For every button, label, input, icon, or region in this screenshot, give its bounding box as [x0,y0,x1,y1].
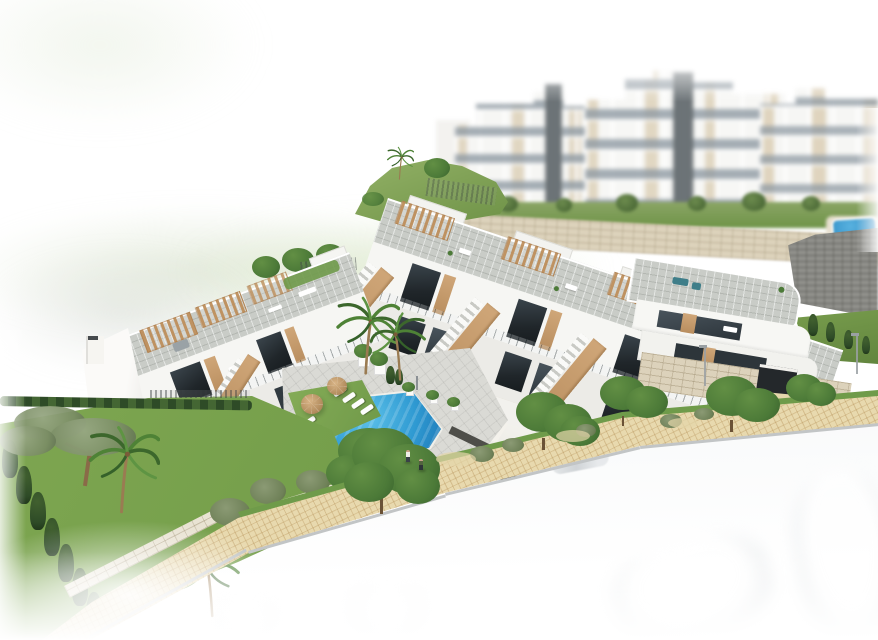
street-tree [344,462,394,502]
elevator-tower [545,84,562,210]
fade-bottom [0,552,878,640]
sand-patch [668,418,698,428]
street-lamp [704,346,706,386]
palm-tree-icon [370,310,428,382]
tree-trunk [730,420,733,432]
person [406,450,410,462]
hill-shrub [362,192,384,206]
person [419,459,423,470]
shrub [502,438,524,452]
background-tree [688,196,706,211]
shrub [250,478,286,504]
palm-tree-icon [86,424,160,514]
potted-plant-leaves [447,397,460,407]
background-tree [616,194,638,212]
background-tree [742,192,766,211]
rooftop-sofa [691,282,701,290]
potted-plant-leaves [426,390,439,400]
tree-trunk [542,438,545,450]
fade-top [430,36,878,102]
street-tree [806,382,836,406]
tree-trunk [622,416,624,426]
street-lamp [856,334,858,374]
background-tree [556,198,572,212]
architectural-render [0,0,878,640]
chimney-cap [88,336,98,340]
street-lamp-head [851,333,859,336]
street-lamp-head [699,345,707,348]
conifer [826,322,835,342]
garden-fence [150,390,250,398]
sand-patch [556,430,590,442]
straw-umbrella [327,377,347,395]
palm-tree-icon [386,146,414,180]
background-tree [802,196,820,211]
street-tree [734,388,780,422]
street-tree [626,386,668,418]
straw-umbrella [301,394,323,414]
shrub [694,408,714,420]
conifer [862,336,870,354]
fade-right [856,108,878,252]
hill-tree [424,158,450,178]
street-tree [396,468,440,504]
sand-patch [436,452,476,466]
chimney [86,336,104,364]
potted-plant-leaves [402,382,415,392]
